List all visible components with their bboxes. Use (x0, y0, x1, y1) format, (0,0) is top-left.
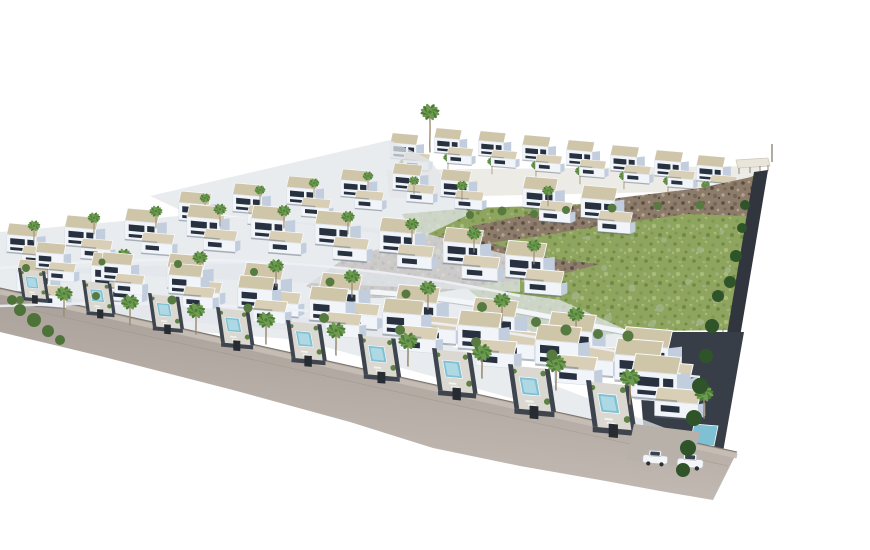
garden-shrub (547, 350, 558, 361)
roadside-tree (7, 295, 17, 305)
boundary-shrub (680, 440, 696, 456)
garden-shrub (608, 204, 617, 213)
garden-shrub (250, 268, 258, 276)
hillside-plant (697, 319, 704, 326)
garden-shrub (623, 331, 634, 342)
hillside-plant (719, 229, 724, 234)
hillside-plant (572, 292, 580, 300)
garden-shrub (593, 329, 603, 339)
roadside-tree (14, 304, 26, 316)
hillside-plant (629, 285, 636, 292)
roadside-tree (42, 325, 54, 337)
garden-shrub (471, 337, 481, 347)
boundary-shrub (740, 200, 750, 210)
boundary-shrub (699, 349, 713, 363)
garden-shrub (531, 317, 541, 327)
garden-shrub (402, 290, 411, 299)
hillside-plant (648, 320, 655, 327)
garden-shrub (244, 304, 253, 313)
garden-shrub (696, 201, 705, 210)
garden-shrub (530, 210, 538, 218)
architectural-render (0, 0, 870, 550)
garden-shrub (654, 202, 662, 210)
boundary-shrub (730, 250, 742, 262)
boundary-shrub (692, 378, 708, 394)
hillside-plant (697, 247, 703, 253)
garden-shrub (498, 207, 507, 216)
garden-shrub (326, 278, 335, 287)
boundary-shrub (686, 410, 702, 426)
garden-shrub (92, 292, 100, 300)
garden-shrub (562, 206, 570, 214)
boundary-shrub (705, 319, 719, 333)
hillside-plant (725, 267, 731, 273)
garden-shrub (22, 264, 30, 272)
garden-shrub (174, 260, 182, 268)
garden-shrub (477, 302, 487, 312)
hillside-plant (656, 304, 664, 312)
garden-shrub (168, 296, 177, 305)
roadside-tree (27, 313, 41, 327)
garden-shrub (319, 313, 329, 323)
garden-shrub (16, 296, 24, 304)
boundary-shrub (724, 276, 736, 288)
garden-shrub (395, 325, 405, 335)
roadside-tree (55, 335, 65, 345)
render-canvas (0, 0, 870, 550)
hillside-plant (685, 279, 691, 285)
garden-shrub (561, 325, 572, 336)
garden-shrub (99, 259, 106, 266)
hillside-plant (661, 237, 667, 243)
boundary-shrub (737, 223, 747, 233)
hillside-plant (601, 265, 607, 271)
hillside-plant (585, 235, 590, 240)
boundary-shrub (676, 463, 690, 477)
garden-shrub (466, 211, 474, 219)
boundary-shrub (712, 290, 724, 302)
